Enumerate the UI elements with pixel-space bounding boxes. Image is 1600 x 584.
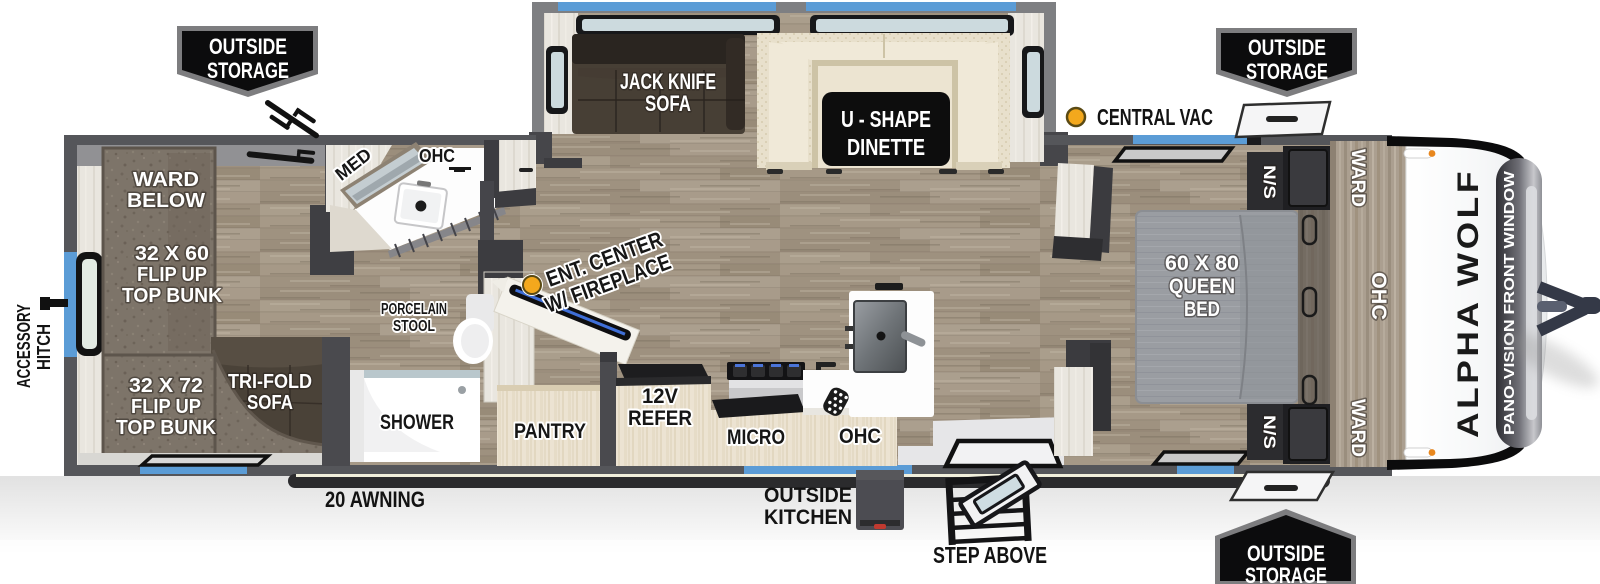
svg-text:STORAGE: STORAGE	[1246, 59, 1328, 84]
svg-text:N/S: N/S	[1260, 165, 1279, 199]
svg-text:PORCELAIN: PORCELAIN	[381, 301, 447, 318]
svg-text:ACCESSORY: ACCESSORY	[14, 304, 34, 388]
svg-text:SOFA: SOFA	[645, 91, 691, 116]
svg-text:DINETTE: DINETTE	[847, 134, 925, 160]
svg-text:OHC: OHC	[419, 146, 455, 166]
svg-text:WARD: WARD	[1347, 149, 1368, 207]
svg-text:WARD: WARD	[1347, 399, 1368, 457]
svg-text:60 X 80: 60 X 80	[1165, 252, 1239, 275]
svg-text:OHC: OHC	[1367, 272, 1390, 320]
svg-text:OUTSIDE: OUTSIDE	[764, 484, 852, 507]
svg-text:STOOL: STOOL	[393, 318, 435, 335]
svg-text:REFER: REFER	[628, 407, 692, 430]
svg-text:N/S: N/S	[1260, 415, 1279, 449]
svg-text:KITCHEN: KITCHEN	[764, 506, 852, 529]
svg-text:OHC: OHC	[839, 425, 881, 448]
svg-text:U - SHAPE: U - SHAPE	[841, 106, 931, 132]
svg-text:QUEEN: QUEEN	[1169, 275, 1235, 298]
svg-text:ALPHA WOLF: ALPHA WOLF	[1452, 168, 1485, 438]
svg-text:BELOW: BELOW	[127, 190, 205, 212]
svg-text:OUTSIDE: OUTSIDE	[209, 34, 287, 59]
svg-text:CENTRAL VAC: CENTRAL VAC	[1097, 104, 1213, 130]
svg-text:SHOWER: SHOWER	[380, 411, 454, 434]
svg-text:TOP BUNK: TOP BUNK	[122, 285, 223, 307]
svg-text:TOP BUNK: TOP BUNK	[116, 417, 217, 439]
svg-text:MICRO: MICRO	[727, 426, 785, 449]
svg-text:TRI-FOLD: TRI-FOLD	[228, 371, 312, 393]
svg-text:STORAGE: STORAGE	[207, 58, 289, 83]
svg-text:FLIP UP: FLIP UP	[137, 264, 207, 286]
svg-text:12V: 12V	[642, 385, 678, 408]
svg-text:OUTSIDE: OUTSIDE	[1248, 35, 1326, 60]
svg-text:WARD: WARD	[133, 169, 199, 191]
svg-text:20 AWNING: 20 AWNING	[325, 487, 425, 512]
svg-text:32 X 72: 32 X 72	[129, 375, 203, 397]
svg-text:HITCH: HITCH	[34, 324, 54, 370]
svg-text:STEP ABOVE: STEP ABOVE	[933, 542, 1047, 568]
svg-text:FLIP UP: FLIP UP	[131, 396, 201, 418]
svg-text:PANO-VISION FRONT WINDOW: PANO-VISION FRONT WINDOW	[1501, 170, 1518, 435]
svg-text:32 X 60: 32 X 60	[135, 243, 209, 265]
svg-text:PANTRY: PANTRY	[514, 420, 586, 443]
svg-text:BED: BED	[1184, 298, 1220, 321]
svg-text:SOFA: SOFA	[247, 392, 293, 414]
svg-text:STORAGE: STORAGE	[1245, 563, 1327, 584]
